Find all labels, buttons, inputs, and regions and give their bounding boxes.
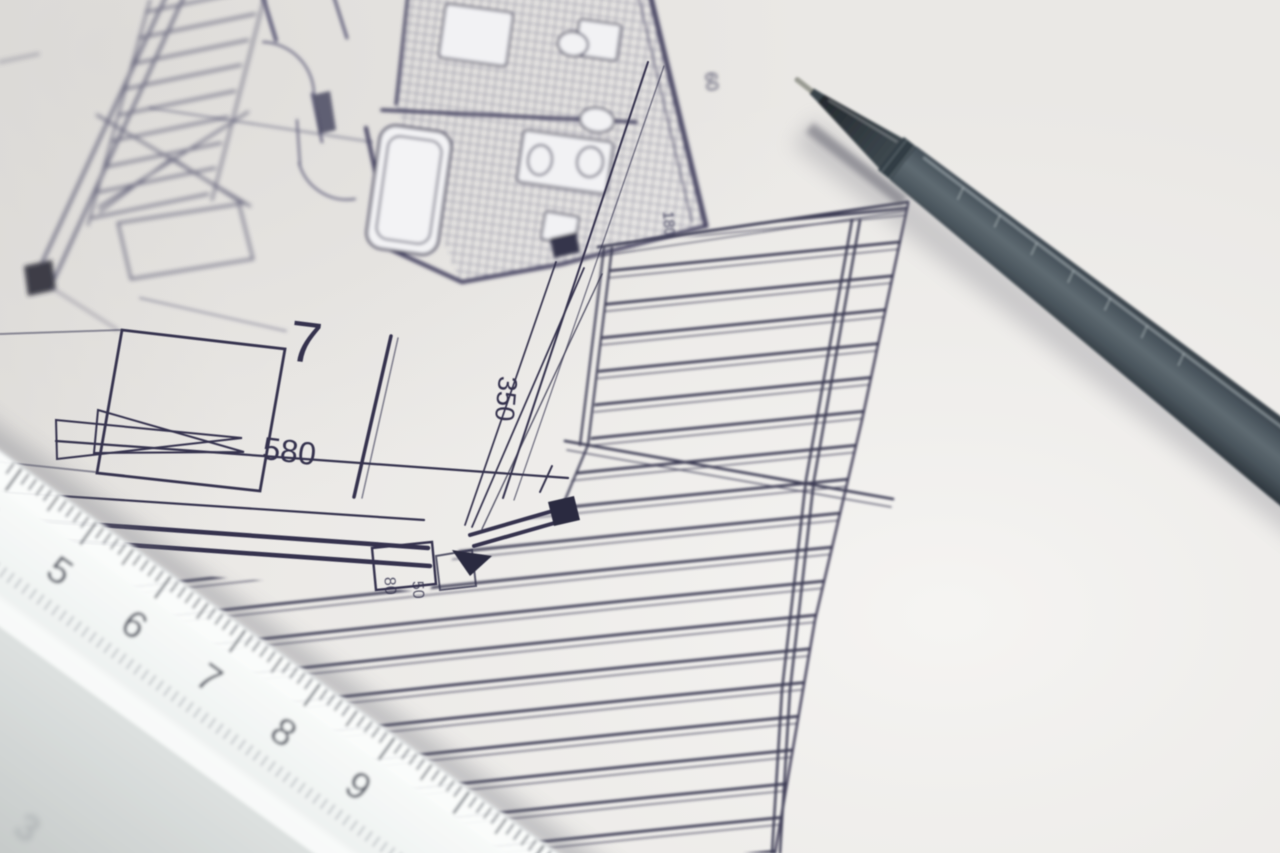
scene-canvas: 60 180 — [0, 0, 1280, 853]
bathtub — [365, 124, 454, 257]
dimension-label-80: 80 — [381, 576, 399, 595]
door-jamb-mark — [24, 260, 56, 296]
washer-fixture — [439, 4, 514, 67]
dimension-label-50: 50 — [409, 580, 427, 599]
dimension-label-180: 180 — [659, 211, 678, 237]
dimension-label-580: 580 — [261, 430, 318, 472]
dimension-label-60: 60 — [701, 71, 722, 92]
dimension-label-350: 350 — [489, 375, 523, 423]
photo-floorplan-scene: 60 180 — [0, 0, 1280, 853]
